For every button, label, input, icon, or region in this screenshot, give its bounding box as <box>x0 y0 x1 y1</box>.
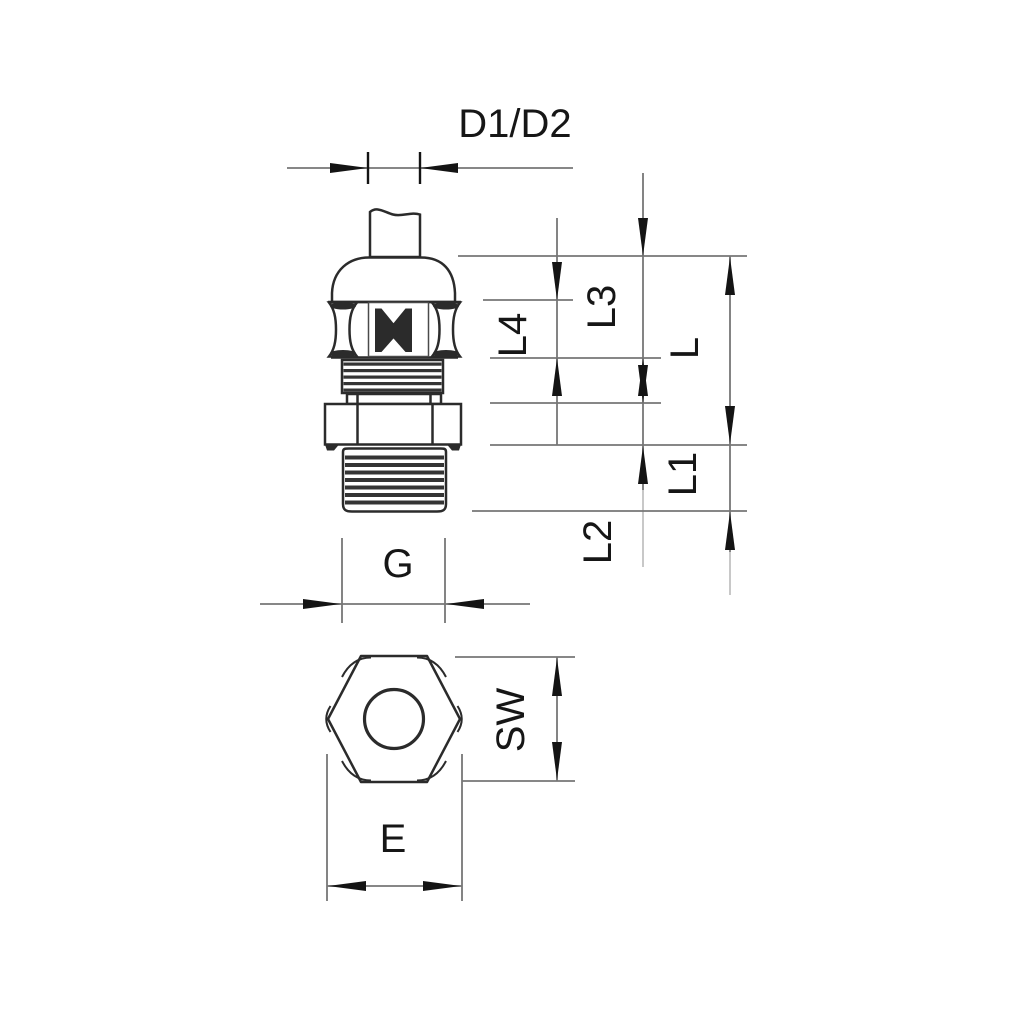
nut-chamfer-right <box>447 445 461 451</box>
cable-gland-dimension-drawing: D1/D2 L4 L3 L2 L L1 <box>0 0 1010 1010</box>
dimension-g: G <box>260 538 530 623</box>
thread-stripe <box>345 486 444 490</box>
side-view <box>325 209 461 511</box>
d1d2-arrow-right <box>420 163 458 173</box>
bore-circle <box>365 690 424 749</box>
lobe-left <box>329 303 357 357</box>
l4-arrow-bottom <box>552 358 562 396</box>
rib-stripe <box>344 376 442 379</box>
label-e: E <box>380 817 407 861</box>
g-arrow-right <box>446 599 484 609</box>
l2-arrow-bottom <box>638 446 648 484</box>
thread-stripe <box>345 456 444 460</box>
thread-stripe <box>345 478 444 482</box>
rib-stripe <box>344 382 442 385</box>
technical-drawing-canvas: D1/D2 L4 L3 L2 L L1 <box>0 0 1010 1010</box>
l2-arrow-top <box>638 365 648 403</box>
l4-arrow-top <box>552 262 562 300</box>
thread-stripe <box>345 471 444 475</box>
l3-arrow-top <box>638 218 648 256</box>
rib-stripe <box>344 389 442 392</box>
lobe-right <box>432 303 460 357</box>
thread-stripe <box>345 501 444 505</box>
label-l4: L4 <box>491 313 535 358</box>
hex-nut-body <box>325 404 461 445</box>
sw-arrow-top <box>552 658 562 696</box>
g-arrow-left <box>303 599 341 609</box>
thread-stripe <box>345 463 444 467</box>
l-arrow-top <box>725 257 735 295</box>
rib-stripe <box>344 369 442 372</box>
l1-arrow-bottom <box>725 512 735 550</box>
nut-chamfer-left <box>325 445 339 451</box>
dimension-sw: SW <box>455 657 575 781</box>
rib-stripe <box>344 363 442 366</box>
label-l2: L2 <box>576 520 620 565</box>
lobe-left-top-cap <box>330 303 356 310</box>
e-arrow-left <box>328 881 366 891</box>
dimension-d1d2: D1/D2 <box>287 102 573 184</box>
dome-cap <box>332 258 455 303</box>
dimension-right-side: L4 L3 L2 L L1 <box>458 173 747 595</box>
label-l1: L1 <box>661 452 705 497</box>
label-g: G <box>382 542 413 586</box>
d1d2-arrow-left <box>330 163 368 173</box>
label-sw: SW <box>489 688 533 753</box>
label-l3: L3 <box>580 285 624 330</box>
l-arrow-bottom <box>725 406 735 444</box>
label-d1d2: D1/D2 <box>458 102 571 146</box>
thread-stripe <box>345 493 444 497</box>
e-arrow-right <box>423 881 461 891</box>
lobe-right-bottom-cap <box>433 350 459 357</box>
lobe-right-top-cap <box>433 303 459 310</box>
collar <box>347 394 441 404</box>
cable-stub <box>370 209 420 257</box>
bottom-view <box>326 656 462 782</box>
lobe-left-bottom-cap <box>330 350 356 357</box>
sw-arrow-bottom <box>552 742 562 780</box>
label-l: L <box>663 337 707 359</box>
